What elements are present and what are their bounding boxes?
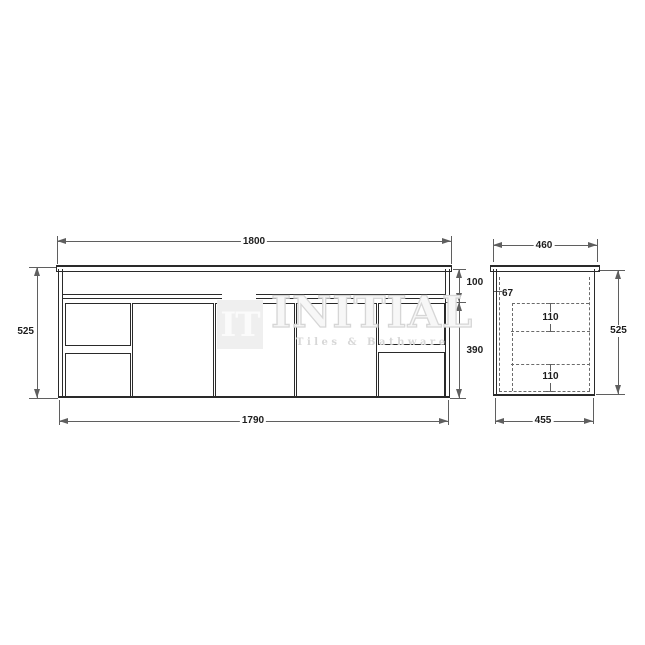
arrowhead-right-icon xyxy=(442,238,451,244)
dim-front-height: 525 xyxy=(6,326,35,338)
dim-side-drawer-upper: 110 xyxy=(540,312,560,324)
arrowhead-left-icon xyxy=(57,238,66,244)
side-door-inner-face-dashed-line xyxy=(499,277,500,391)
front-left-panel-outer-line xyxy=(58,269,59,398)
arrowhead-up-icon xyxy=(615,270,621,279)
lower-drawer-box-top-dashed-line xyxy=(511,364,590,365)
extension-line xyxy=(597,239,598,262)
side-drawer-box-front-dashed-line xyxy=(512,303,513,391)
side-countertop xyxy=(490,265,600,272)
arrowhead-right-icon xyxy=(439,418,448,424)
arrowhead-up-icon xyxy=(34,267,40,276)
upper-drawer-box-top-dashed-line xyxy=(512,303,589,304)
dim-front-width-top: 1800 xyxy=(241,236,267,248)
dim-front-lower-section: 390 xyxy=(466,345,485,357)
arrowhead-left-icon xyxy=(59,418,68,424)
front-countertop xyxy=(56,265,452,272)
arrowhead-left-icon xyxy=(493,242,502,248)
arrowhead-right-icon xyxy=(584,418,593,424)
right-drawer-front-lower xyxy=(378,352,445,397)
dim-side-width-bottom: 455 xyxy=(533,415,554,427)
dim-side-width-top: 460 xyxy=(534,240,555,252)
watermark-logo: IT xyxy=(217,300,263,349)
upper-drawer-box-bottom-dashed-line xyxy=(511,331,590,332)
watermark-logo-text: IT xyxy=(220,305,259,345)
door-panel-left xyxy=(132,303,214,397)
dim-front-top-section: 100 xyxy=(466,277,485,289)
vanity-dimension-drawing: IT INITIAL Tiles & Bathware 1800 xyxy=(0,0,645,645)
dim-side-front-offset: 67 xyxy=(501,288,514,300)
arrowhead-down-icon xyxy=(615,385,621,394)
left-drawer-front-lower xyxy=(65,353,131,397)
side-bottom-line xyxy=(493,394,595,396)
front-left-panel-inner-line xyxy=(62,269,63,398)
watermark-brand-name: INITIAL xyxy=(271,292,473,335)
dim-side-height: 525 xyxy=(608,325,629,337)
arrowhead-left-icon xyxy=(495,418,504,424)
watermark-tagline: Tiles & Bathware xyxy=(296,337,449,349)
side-back-panel-dashed-line xyxy=(589,277,590,391)
arrowhead-down-icon xyxy=(456,389,462,398)
dim-front-width-bottom: 1790 xyxy=(240,415,266,427)
lower-drawer-box-bottom-dashed-line xyxy=(499,391,590,392)
side-front-edge-inner-line xyxy=(496,269,497,395)
arrowhead-down-icon xyxy=(34,389,40,398)
left-drawer-front-upper xyxy=(65,303,131,346)
side-back-edge-line xyxy=(594,269,595,395)
dim-side-drawer-lower: 110 xyxy=(540,371,560,383)
arrowhead-right-icon xyxy=(588,242,597,248)
arrowhead-up-icon xyxy=(456,269,462,278)
side-front-edge-line xyxy=(493,269,494,395)
